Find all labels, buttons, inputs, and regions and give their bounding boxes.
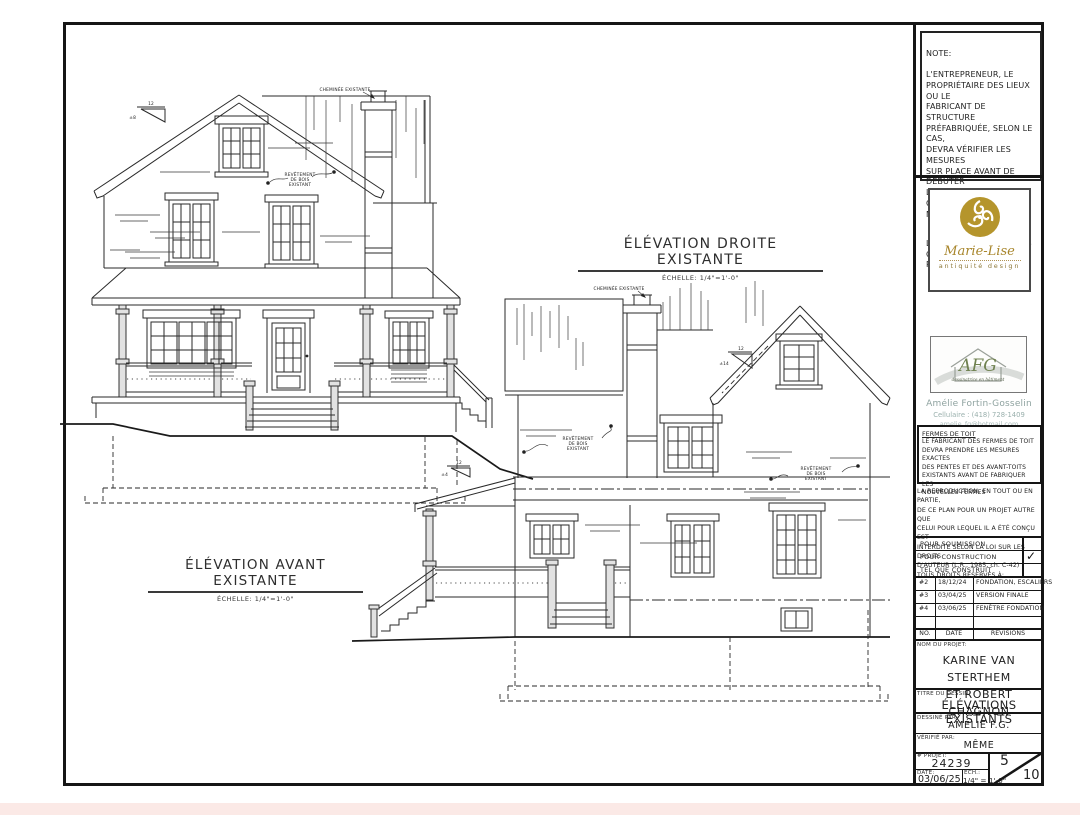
svg-text:AFG: AFG xyxy=(957,356,997,376)
date-value: 03/06/25 xyxy=(918,774,961,785)
rev-header-revisions: RÉVISIONS xyxy=(974,630,1042,637)
drawn-by-value: AMÉLIE F.G. xyxy=(915,720,1043,731)
elevations-line-art: CHEMINÉE EXISTANTE REVÊTEMENT DE BOIS EX… xyxy=(60,20,920,795)
right-elevation-title: ÉLÉVATION DROITE EXISTANTE ÉCHELLE: 1/4"… xyxy=(578,236,823,282)
afg-emblem-icon: AFG dessinatrice en bâtiment xyxy=(931,337,1026,392)
sheet-no: 5 xyxy=(1000,753,1009,769)
general-notes: NOTE: L'ENTREPRENEUR, LE PROPRIÉTAIRE DE… xyxy=(920,31,1042,181)
svg-text:12: 12 xyxy=(738,346,744,352)
rev-date: 03/04/25 xyxy=(938,592,967,599)
annotation-chimney-front: CHEMINÉE EXISTANTE xyxy=(320,85,371,93)
truss-note-title: FERMES DE TOIT xyxy=(922,430,1037,438)
rev-desc: FENÊTRE FONDATION xyxy=(976,605,1044,612)
drawing-title-label: TITRE DU DESSIN: xyxy=(917,691,971,697)
marie-lise-logo: Marie-Lise antiquité design xyxy=(928,188,1031,292)
marie-lise-emblem-icon xyxy=(958,195,1002,239)
sheet-total: 10 xyxy=(1023,768,1040,783)
afg-logo: AFG dessinatrice en bâtiment xyxy=(930,336,1027,393)
svg-text:EXISTANT: EXISTANT xyxy=(805,476,827,482)
drawing-title-text: ÉLÉVATION DROITE EXISTANTE xyxy=(578,236,823,272)
status-row-construction: POUR CONSTRUCTION xyxy=(920,553,997,561)
rev-header-date: DATE xyxy=(935,630,973,637)
slope-right-gable-label: ±14 xyxy=(719,361,729,367)
marie-lise-name: Marie-Lise xyxy=(930,244,1029,259)
annotation-siding-front: REVÊTEMENT xyxy=(285,170,316,178)
rev-no: #2 xyxy=(919,579,928,586)
svg-text:12: 12 xyxy=(456,460,462,466)
plan-sheet: CHEMINÉE EXISTANTE REVÊTEMENT DE BOIS EX… xyxy=(0,0,1080,815)
afg-person-name: Amélie Fortin-Gosselin xyxy=(913,399,1045,409)
construction-checkmark: ✓ xyxy=(1026,549,1036,563)
rev-no: #4 xyxy=(919,605,928,612)
status-row-soumission: POUR SOUMISSION xyxy=(920,540,986,548)
afg-phone: Cellulaire : (418) 728-1409 xyxy=(913,411,1045,419)
right-elevation-drawing: CHEMINÉE EXISTANTE REVÊTEMENT DE BOIS EX… xyxy=(352,281,890,701)
checked-by-value: MÊME xyxy=(915,740,1043,751)
scale-label: ÉCH.: xyxy=(964,770,980,776)
sheet-number-cell: 5 10 xyxy=(990,752,1043,786)
drawing-scale-text: ÉCHELLE: 1/4"=1'-0" xyxy=(148,595,363,603)
slope-front-porch-label: ±4 xyxy=(441,472,448,478)
project-name-label: NOM DU PROJET: xyxy=(917,642,967,648)
rev-date: 03/06/25 xyxy=(938,605,967,612)
status-row-telquconstruit: TEL QUE CONSTRUIT xyxy=(920,566,992,574)
slope-run-label: 12 xyxy=(148,101,154,107)
roof-truss-note: FERMES DE TOIT LE FABRICANT DES FERMES D… xyxy=(917,425,1042,484)
front-elevation-title: ÉLÉVATION AVANT EXISTANTE ÉCHELLE: 1/4"=… xyxy=(148,557,363,603)
rev-date: 18/12/24 xyxy=(938,579,967,586)
rev-desc: FONDATION, ESCALIERS xyxy=(976,579,1052,586)
note-title: NOTE: xyxy=(926,49,1036,60)
slope-front-main-label: ±8 xyxy=(129,115,136,121)
drawing-title-text: ÉLÉVATION AVANT EXISTANTE xyxy=(148,557,363,593)
annotation-siding-right-1: REVÊTEMENT xyxy=(563,434,594,442)
annotation-siding-right-2: REVÊTEMENT xyxy=(801,464,832,472)
rev-header-no: NO. xyxy=(915,630,935,637)
svg-text:EXISTANT: EXISTANT xyxy=(289,182,311,188)
bottom-strip xyxy=(0,803,1080,815)
marie-lise-tagline: antiquité design xyxy=(930,262,1029,270)
annotation-chimney-right: CHEMINÉE EXISTANTE xyxy=(594,284,645,292)
afg-tagline: dessinatrice en bâtiment xyxy=(952,377,1005,382)
rev-desc: VERSION FINALE xyxy=(976,592,1029,599)
svg-text:EXISTANT: EXISTANT xyxy=(567,446,589,452)
drawing-scale-text: ÉCHELLE: 1/4"=1'-0" xyxy=(578,274,823,282)
front-elevation-drawing: CHEMINÉE EXISTANTE REVÊTEMENT DE BOIS EX… xyxy=(60,85,533,503)
rev-no: #3 xyxy=(919,592,928,599)
project-no-value: 24239 xyxy=(915,757,988,770)
